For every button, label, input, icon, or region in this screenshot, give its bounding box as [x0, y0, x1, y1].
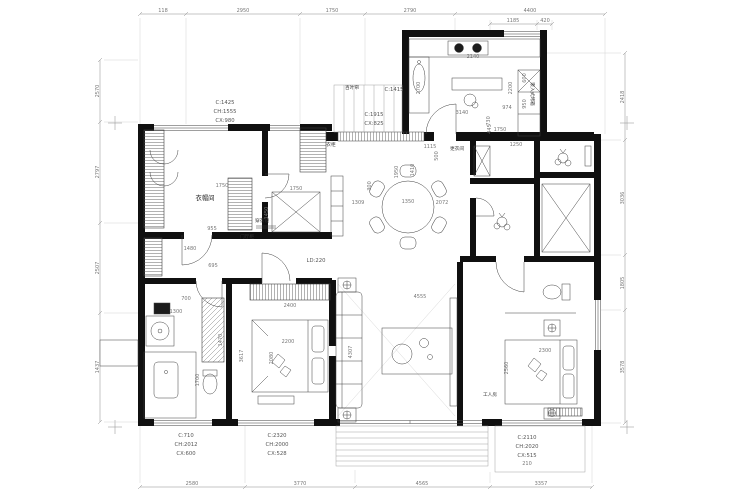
cloakroom-wardrobe-left [144, 130, 164, 228]
window-annotation-w5: C:2320 CH:2000 CX:528 [266, 433, 290, 457]
bath-sink-icon [154, 362, 178, 398]
dim-right-3: 3578 [620, 361, 626, 374]
kitchen-door-arc [426, 104, 456, 134]
dim-bottom-0: 2580 [186, 481, 199, 487]
dim-left-0: 2570 [95, 85, 101, 98]
washing-machine [146, 316, 174, 346]
w1-line2: CH:1555 [214, 109, 237, 115]
idim-22: 2080 [269, 352, 275, 365]
w2-line2: CX:825 [364, 121, 383, 127]
idim-7: 974 [502, 105, 512, 111]
bath-shelf [202, 298, 224, 362]
dim-left-1: 2797 [95, 166, 101, 179]
dim-bottom-2: 4565 [416, 481, 429, 487]
idim-21: 2200 [282, 339, 295, 345]
pillow [563, 374, 574, 398]
w2-line1: C:1915 [365, 112, 384, 118]
right-wing [476, 146, 591, 230]
w4-line3: CX:600 [176, 451, 196, 457]
window-annotation-w6: C:2110 CH:2020 CX:515 [516, 435, 540, 459]
w5-line2: CH:2000 [266, 442, 290, 448]
window-annotation-w1: C:1425 CH:1555 CX:980 [214, 100, 237, 124]
clothes-decor [528, 358, 547, 381]
idim-34: 500 [434, 151, 440, 161]
pillow [312, 326, 324, 352]
dim-bottom-1: 3770 [294, 481, 307, 487]
dining-chairs [368, 165, 448, 249]
dim-left-2: 2507 [95, 262, 101, 275]
dim-top-4: 4400 [524, 8, 537, 14]
idim-5: 600 [522, 73, 528, 83]
burner-icon [473, 44, 482, 53]
idim-37: 695 [208, 263, 218, 269]
label-maid-room: 工人房 [483, 391, 497, 398]
idim-4: 2200 [508, 82, 514, 95]
idim-31: 700 [181, 296, 191, 302]
bath-door-arc [476, 198, 494, 216]
idim-23: 3617 [239, 350, 245, 363]
dim-top-3: 2790 [404, 8, 417, 14]
w6-line2: CH:2020 [516, 444, 540, 450]
idim-29: 1700 [195, 374, 201, 387]
dining-area [331, 165, 448, 249]
dim-right-0: 2418 [620, 91, 626, 104]
w5-line1: C:2320 [268, 433, 288, 439]
idim-14: 300 [367, 181, 373, 191]
cloakroom-wardrobe-right [228, 178, 252, 230]
corridor-cabinet [144, 238, 162, 276]
balcony-center [336, 426, 488, 466]
balcony-right [495, 426, 585, 472]
idim-26: 2300 [539, 348, 552, 354]
idim-15: 1750 [216, 183, 229, 189]
floor-plan-drawing: 118 2950 1750 2790 4400 1185 420 2580 37… [0, 0, 740, 500]
cloakroom-door-arc [265, 174, 289, 198]
idim-33: 210 [522, 461, 532, 467]
idim-12: 2072 [436, 200, 449, 206]
label-dressing-room: 更衣间 [450, 145, 464, 152]
w1-line1: C:1425 [216, 100, 235, 106]
survey-marks [108, 116, 634, 434]
bed-bench [258, 396, 294, 404]
entry-door-arc [262, 253, 290, 283]
flue-box [100, 340, 138, 366]
master-bed [252, 320, 328, 392]
idim-0: 2140 [467, 54, 480, 60]
living-room [336, 278, 457, 422]
toilet-tank [562, 284, 570, 300]
idim-16: 955 [207, 226, 217, 232]
toilet-tank [203, 370, 217, 376]
idim-6: 950 [522, 99, 528, 109]
pillow [312, 358, 324, 384]
label-ld: LD:220 [307, 258, 327, 264]
dim-top-2: 1750 [326, 8, 339, 14]
label-cloakroom: 衣帽间 [196, 193, 215, 202]
dimension-lines [98, 12, 627, 489]
idim-28: 1300 [170, 309, 183, 315]
w6-line3: CX:515 [517, 453, 536, 459]
person-figure [464, 94, 476, 106]
label-built-in-oven: 嵌入式烤箱 [529, 82, 536, 106]
dim-top-1: 2950 [237, 8, 250, 14]
burner-icon [455, 44, 464, 53]
idim-35: 1410 [410, 164, 416, 177]
idim-18: 1750 [290, 186, 303, 192]
idim-27: 2560 [504, 362, 510, 375]
dim-top-0: 118 [158, 8, 168, 14]
decor-plate [392, 344, 412, 364]
idim-11: 1350 [402, 199, 415, 205]
idim-20: 2400 [284, 303, 297, 309]
idim-17: 1450 [264, 207, 270, 220]
tv-cabinet [450, 298, 457, 406]
radiator-small [585, 146, 591, 166]
duct-shaft [474, 146, 490, 176]
idim-13: 1950 [394, 166, 400, 179]
master-bedroom [252, 320, 328, 404]
idim-24: 4555 [414, 294, 427, 300]
ceiling-lines [338, 284, 455, 416]
window-annotation-w3: C:1415 [385, 87, 404, 93]
elevator-shaft [542, 184, 590, 252]
idim-30: 1470 [218, 334, 224, 347]
toilet-icon [543, 285, 561, 299]
radiator [548, 408, 582, 416]
w4-line1: C:710 [178, 433, 194, 439]
dining-table [382, 181, 434, 233]
kitchen-island [452, 78, 502, 90]
label-hall-cabinet: 门厅柜 [240, 233, 254, 240]
entry-mat [272, 192, 320, 232]
dim-ktop-1: 420 [540, 18, 550, 24]
cooktop [154, 303, 170, 314]
idim-25: 4307 [348, 346, 354, 359]
pillow [563, 346, 574, 370]
w1-line3: CX:980 [215, 118, 235, 124]
plant-icon [555, 149, 571, 166]
dim-right-1: 3036 [620, 192, 626, 205]
wardrobes [144, 128, 582, 416]
w5-line3: CX:528 [267, 451, 287, 457]
idim-19: 1250 [510, 142, 523, 148]
idim-8: 1750 [494, 127, 507, 133]
dim-ktop-0: 1185 [507, 18, 520, 24]
dim-right-2: 1805 [620, 277, 626, 290]
plant-icon [494, 213, 510, 230]
window-annotation-w4: C:710 CH:2012 CX:600 [175, 433, 198, 457]
dim-bottom-3: 3357 [535, 481, 548, 487]
maid-bedroom [496, 262, 577, 419]
w3-line1: C:1415 [385, 87, 404, 93]
floor-plan-canvas: 118 2950 1750 2790 4400 1185 420 2580 37… [0, 0, 740, 500]
idim-1: 3140 [456, 110, 469, 116]
w6-line1: C:2110 [518, 435, 538, 441]
master-wardrobe [250, 284, 330, 300]
idim-3: 2700 [416, 82, 422, 95]
idim-36: 1480 [184, 246, 197, 252]
toilet-icon [203, 374, 217, 394]
idim-10: 1309 [352, 200, 365, 206]
idim-32: 1115 [424, 144, 437, 150]
stove-icon [448, 41, 488, 55]
idim-9: 445 [487, 124, 493, 134]
entry-closet [300, 128, 326, 172]
bedroom-door-arc [496, 262, 524, 292]
w4-line2: CH:2012 [175, 442, 198, 448]
label-louver: 百叶帘 [345, 84, 359, 91]
label-wardrobe: 衣柜 [326, 141, 336, 148]
